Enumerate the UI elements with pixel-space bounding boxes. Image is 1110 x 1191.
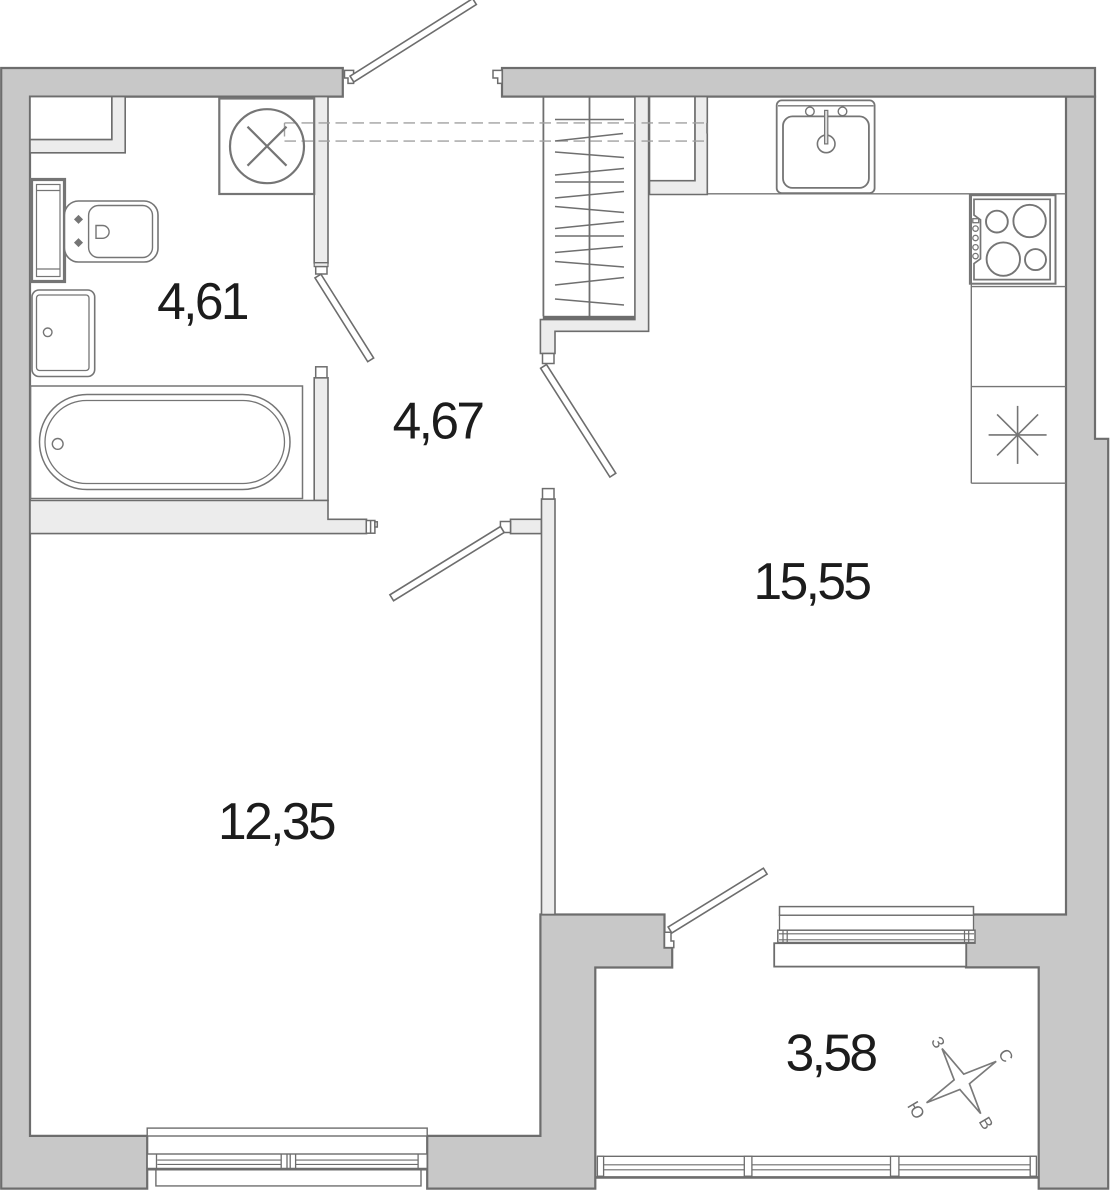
svg-text:4,61: 4,61 [157,272,248,330]
svg-text:15,55: 15,55 [754,552,871,610]
svg-text:12,35: 12,35 [218,792,335,850]
svg-text:4,67: 4,67 [393,392,484,450]
svg-text:3,58: 3,58 [786,1024,877,1082]
